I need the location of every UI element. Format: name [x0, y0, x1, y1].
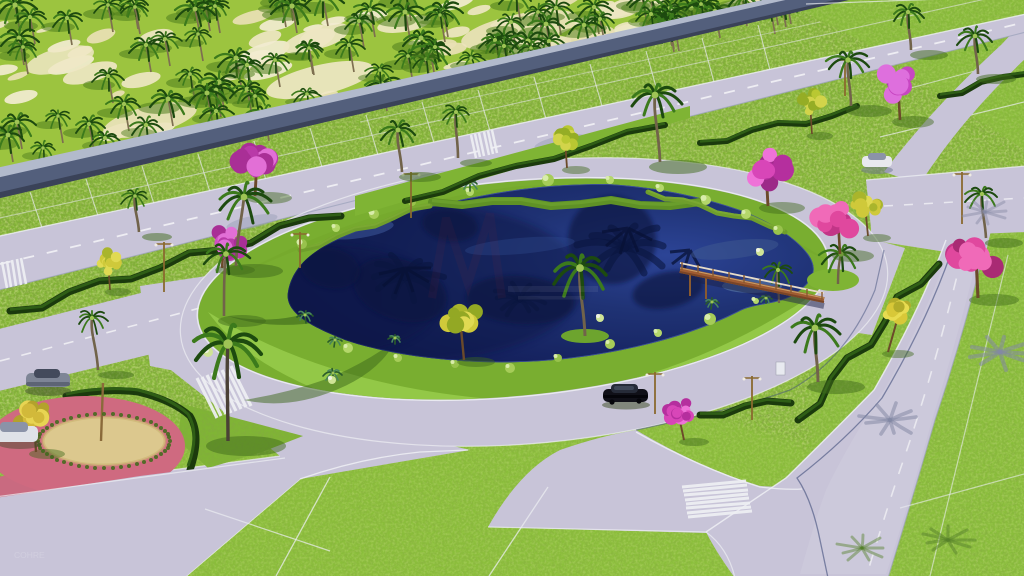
- svg-text:COHRE: COHRE: [14, 550, 45, 560]
